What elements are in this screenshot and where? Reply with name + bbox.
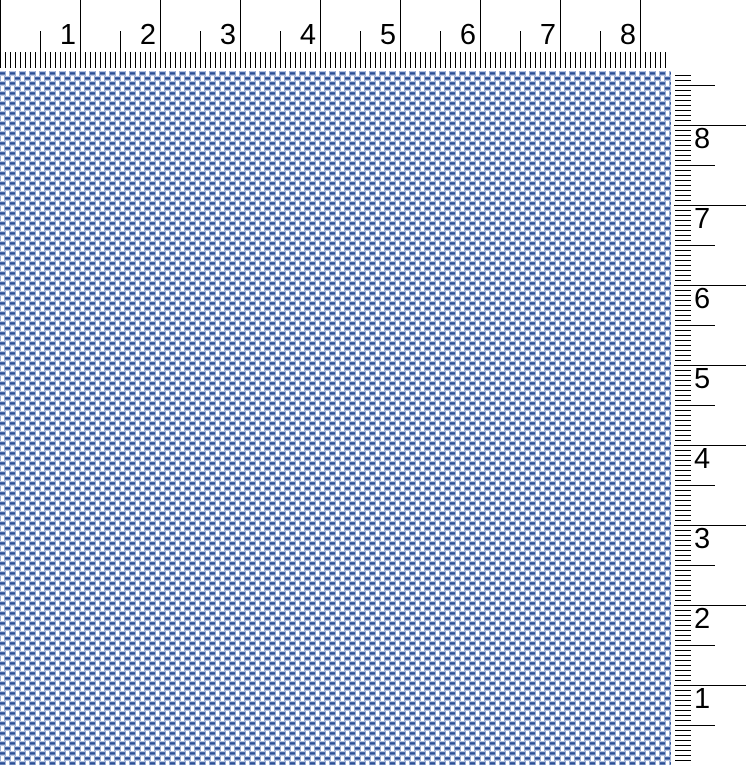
- half-inch-tick: [675, 645, 715, 646]
- minor-tick: [675, 355, 691, 356]
- minor-tick: [675, 320, 691, 321]
- minor-tick: [545, 52, 546, 68]
- minor-tick: [370, 52, 371, 68]
- ruler-label: 3: [196, 21, 236, 50]
- minor-tick: [675, 555, 691, 556]
- half-inch-tick: [675, 405, 715, 406]
- minor-tick: [675, 190, 691, 191]
- minor-tick: [395, 52, 396, 68]
- minor-tick: [675, 680, 691, 681]
- minor-tick: [650, 52, 651, 68]
- minor-tick: [25, 52, 26, 68]
- ruler-label: 4: [276, 21, 316, 50]
- minor-tick: [675, 675, 691, 676]
- half-inch-tick: [675, 85, 715, 86]
- minor-tick: [675, 625, 691, 626]
- minor-tick: [665, 52, 666, 68]
- minor-tick: [675, 310, 691, 311]
- minor-tick: [525, 52, 526, 68]
- minor-tick: [675, 560, 691, 561]
- ruler-label: 6: [436, 21, 476, 50]
- minor-tick: [675, 740, 691, 741]
- minor-tick: [675, 395, 691, 396]
- minor-tick: [385, 52, 386, 68]
- inch-tick: [640, 0, 641, 68]
- minor-tick: [675, 715, 691, 716]
- minor-tick: [675, 110, 691, 111]
- vertical-ruler: 87654321: [674, 70, 746, 765]
- minor-tick: [140, 52, 141, 68]
- minor-tick: [555, 52, 556, 68]
- minor-tick: [235, 52, 236, 68]
- inch-tick: [0, 0, 1, 68]
- minor-tick: [415, 52, 416, 68]
- minor-tick: [675, 575, 691, 576]
- minor-tick: [675, 430, 691, 431]
- minor-tick: [675, 440, 691, 441]
- minor-tick: [130, 52, 131, 68]
- minor-tick: [305, 52, 306, 68]
- fabric-drawdown-canvas[interactable]: [0, 71, 671, 765]
- minor-tick: [675, 385, 691, 386]
- minor-tick: [610, 52, 611, 68]
- minor-tick: [675, 155, 691, 156]
- minor-tick: [455, 52, 456, 68]
- minor-tick: [675, 90, 691, 91]
- minor-tick: [250, 52, 251, 68]
- minor-tick: [490, 52, 491, 68]
- minor-tick: [675, 470, 691, 471]
- minor-tick: [195, 52, 196, 68]
- minor-tick: [675, 535, 691, 536]
- minor-tick: [675, 295, 691, 296]
- minor-tick: [675, 520, 691, 521]
- minor-tick: [70, 52, 71, 68]
- minor-tick: [445, 52, 446, 68]
- minor-tick: [675, 595, 691, 596]
- minor-tick: [50, 52, 51, 68]
- ruler-label: 3: [694, 525, 710, 554]
- minor-tick: [675, 460, 691, 461]
- inch-tick: [160, 0, 161, 68]
- ruler-label: 8: [694, 125, 710, 154]
- minor-tick: [255, 52, 256, 68]
- minor-tick: [210, 52, 211, 68]
- minor-tick: [135, 52, 136, 68]
- minor-tick: [100, 52, 101, 68]
- minor-tick: [15, 52, 16, 68]
- fabric-preview-window: 12345678 87654321: [0, 0, 746, 765]
- minor-tick: [275, 52, 276, 68]
- minor-tick: [110, 52, 111, 68]
- minor-tick: [675, 100, 691, 101]
- minor-tick: [410, 52, 411, 68]
- minor-tick: [605, 52, 606, 68]
- minor-tick: [675, 375, 691, 376]
- minor-tick: [345, 52, 346, 68]
- minor-tick: [230, 52, 231, 68]
- minor-tick: [675, 550, 691, 551]
- minor-tick: [675, 745, 691, 746]
- minor-tick: [675, 215, 691, 216]
- minor-tick: [10, 52, 11, 68]
- minor-tick: [675, 475, 691, 476]
- minor-tick: [675, 185, 691, 186]
- minor-tick: [125, 52, 126, 68]
- minor-tick: [465, 52, 466, 68]
- minor-tick: [675, 345, 691, 346]
- minor-tick: [300, 52, 301, 68]
- ruler-label: 7: [516, 21, 556, 50]
- minor-tick: [675, 290, 691, 291]
- minor-tick: [615, 52, 616, 68]
- minor-tick: [180, 52, 181, 68]
- minor-tick: [675, 640, 691, 641]
- minor-tick: [675, 270, 691, 271]
- minor-tick: [485, 52, 486, 68]
- minor-tick: [530, 52, 531, 68]
- minor-tick: [675, 540, 691, 541]
- minor-tick: [675, 700, 691, 701]
- minor-tick: [535, 52, 536, 68]
- minor-tick: [75, 52, 76, 68]
- ruler-label: 1: [36, 21, 76, 50]
- minor-tick: [675, 275, 691, 276]
- minor-tick: [675, 370, 691, 371]
- minor-tick: [675, 455, 691, 456]
- minor-tick: [675, 710, 691, 711]
- minor-tick: [675, 390, 691, 391]
- half-inch-tick: [675, 485, 715, 486]
- minor-tick: [515, 52, 516, 68]
- minor-tick: [675, 435, 691, 436]
- minor-tick: [675, 480, 691, 481]
- minor-tick: [675, 690, 691, 691]
- minor-tick: [675, 135, 691, 136]
- minor-tick: [675, 305, 691, 306]
- minor-tick: [675, 495, 691, 496]
- minor-tick: [675, 730, 691, 731]
- minor-tick: [540, 52, 541, 68]
- minor-tick: [675, 500, 691, 501]
- minor-tick: [245, 52, 246, 68]
- minor-tick: [585, 52, 586, 68]
- minor-tick: [675, 695, 691, 696]
- half-inch-tick: [675, 565, 715, 566]
- minor-tick: [675, 80, 691, 81]
- minor-tick: [570, 52, 571, 68]
- minor-tick: [675, 250, 691, 251]
- minor-tick: [625, 52, 626, 68]
- minor-tick: [315, 52, 316, 68]
- minor-tick: [675, 380, 691, 381]
- inch-tick: [560, 0, 561, 68]
- minor-tick: [550, 52, 551, 68]
- minor-tick: [675, 130, 691, 131]
- minor-tick: [145, 52, 146, 68]
- minor-tick: [675, 335, 691, 336]
- minor-tick: [675, 580, 691, 581]
- minor-tick: [175, 52, 176, 68]
- minor-tick: [675, 510, 691, 511]
- minor-tick: [430, 52, 431, 68]
- minor-tick: [65, 52, 66, 68]
- minor-tick: [675, 515, 691, 516]
- minor-tick: [675, 415, 691, 416]
- minor-tick: [425, 52, 426, 68]
- minor-tick: [470, 52, 471, 68]
- minor-tick: [675, 670, 691, 671]
- minor-tick: [290, 52, 291, 68]
- minor-tick: [420, 52, 421, 68]
- minor-tick: [450, 52, 451, 68]
- minor-tick: [55, 52, 56, 68]
- minor-tick: [675, 615, 691, 616]
- minor-tick: [390, 52, 391, 68]
- minor-tick: [675, 505, 691, 506]
- ruler-label: 1: [694, 685, 710, 714]
- minor-tick: [580, 52, 581, 68]
- minor-tick: [675, 410, 691, 411]
- fabric-weave-texture: [0, 71, 671, 765]
- minor-tick: [380, 52, 381, 68]
- minor-tick: [20, 52, 21, 68]
- minor-tick: [105, 52, 106, 68]
- minor-tick: [675, 235, 691, 236]
- minor-tick: [675, 590, 691, 591]
- minor-tick: [675, 225, 691, 226]
- minor-tick: [675, 425, 691, 426]
- minor-tick: [675, 655, 691, 656]
- minor-tick: [5, 52, 6, 68]
- minor-tick: [675, 330, 691, 331]
- minor-tick: [60, 52, 61, 68]
- minor-tick: [325, 52, 326, 68]
- minor-tick: [185, 52, 186, 68]
- minor-tick: [675, 450, 691, 451]
- minor-tick: [675, 260, 691, 261]
- minor-tick: [330, 52, 331, 68]
- minor-tick: [95, 52, 96, 68]
- minor-tick: [285, 52, 286, 68]
- ruler-label: 8: [596, 21, 636, 50]
- minor-tick: [675, 720, 691, 721]
- minor-tick: [675, 220, 691, 221]
- half-inch-tick: [675, 165, 715, 166]
- half-inch-tick: [675, 725, 715, 726]
- minor-tick: [675, 340, 691, 341]
- minor-tick: [675, 635, 691, 636]
- minor-tick: [115, 52, 116, 68]
- minor-tick: [460, 52, 461, 68]
- minor-tick: [675, 705, 691, 706]
- minor-tick: [475, 52, 476, 68]
- half-inch-tick: [675, 245, 715, 246]
- minor-tick: [675, 195, 691, 196]
- minor-tick: [675, 400, 691, 401]
- minor-tick: [505, 52, 506, 68]
- minor-tick: [675, 660, 691, 661]
- minor-tick: [675, 140, 691, 141]
- minor-tick: [675, 75, 691, 76]
- minor-tick: [675, 490, 691, 491]
- minor-tick: [675, 240, 691, 241]
- ruler-label: 7: [694, 205, 710, 234]
- minor-tick: [675, 180, 691, 181]
- minor-tick: [675, 630, 691, 631]
- minor-tick: [675, 420, 691, 421]
- ruler-label: 6: [694, 285, 710, 314]
- minor-tick: [675, 280, 691, 281]
- minor-tick: [655, 52, 656, 68]
- minor-tick: [510, 52, 511, 68]
- minor-tick: [225, 52, 226, 68]
- minor-tick: [675, 150, 691, 151]
- minor-tick: [165, 52, 166, 68]
- minor-tick: [45, 52, 46, 68]
- minor-tick: [170, 52, 171, 68]
- minor-tick: [375, 52, 376, 68]
- minor-tick: [675, 360, 691, 361]
- minor-tick: [675, 95, 691, 96]
- minor-tick: [435, 52, 436, 68]
- minor-tick: [215, 52, 216, 68]
- minor-tick: [675, 120, 691, 121]
- minor-tick: [635, 52, 636, 68]
- minor-tick: [155, 52, 156, 68]
- minor-tick: [675, 315, 691, 316]
- minor-tick: [675, 230, 691, 231]
- minor-tick: [575, 52, 576, 68]
- inch-tick: [240, 0, 241, 68]
- minor-tick: [595, 52, 596, 68]
- minor-tick: [205, 52, 206, 68]
- minor-tick: [260, 52, 261, 68]
- minor-tick: [675, 665, 691, 666]
- minor-tick: [675, 735, 691, 736]
- minor-tick: [85, 52, 86, 68]
- minor-tick: [675, 760, 691, 761]
- minor-tick: [190, 52, 191, 68]
- minor-tick: [675, 105, 691, 106]
- ruler-label: 5: [356, 21, 396, 50]
- minor-tick: [675, 650, 691, 651]
- inch-tick: [80, 0, 81, 68]
- minor-tick: [675, 200, 691, 201]
- minor-tick: [295, 52, 296, 68]
- ruler-label: 5: [694, 365, 710, 394]
- minor-tick: [365, 52, 366, 68]
- minor-tick: [495, 52, 496, 68]
- minor-tick: [675, 545, 691, 546]
- minor-tick: [675, 300, 691, 301]
- minor-tick: [675, 265, 691, 266]
- minor-tick: [675, 600, 691, 601]
- minor-tick: [310, 52, 311, 68]
- minor-tick: [35, 52, 36, 68]
- minor-tick: [675, 160, 691, 161]
- minor-tick: [335, 52, 336, 68]
- minor-tick: [590, 52, 591, 68]
- minor-tick: [405, 52, 406, 68]
- horizontal-ruler: 12345678: [0, 0, 746, 70]
- ruler-label: 2: [694, 605, 710, 634]
- half-inch-tick: [675, 325, 715, 326]
- minor-tick: [675, 175, 691, 176]
- minor-tick: [675, 750, 691, 751]
- minor-tick: [645, 52, 646, 68]
- ruler-label: 4: [694, 445, 710, 474]
- minor-tick: [675, 465, 691, 466]
- minor-tick: [565, 52, 566, 68]
- minor-tick: [270, 52, 271, 68]
- minor-tick: [675, 620, 691, 621]
- minor-tick: [265, 52, 266, 68]
- minor-tick: [675, 570, 691, 571]
- minor-tick: [630, 52, 631, 68]
- ruler-label: 2: [116, 21, 156, 50]
- minor-tick: [30, 52, 31, 68]
- minor-tick: [340, 52, 341, 68]
- minor-tick: [500, 52, 501, 68]
- minor-tick: [675, 210, 691, 211]
- inch-tick: [480, 0, 481, 68]
- minor-tick: [675, 170, 691, 171]
- inch-tick: [320, 0, 321, 68]
- minor-tick: [660, 52, 661, 68]
- minor-tick: [675, 610, 691, 611]
- minor-tick: [675, 585, 691, 586]
- minor-tick: [90, 52, 91, 68]
- minor-tick: [675, 255, 691, 256]
- inch-tick: [400, 0, 401, 68]
- minor-tick: [675, 755, 691, 756]
- minor-tick: [220, 52, 221, 68]
- minor-tick: [675, 115, 691, 116]
- minor-tick: [150, 52, 151, 68]
- minor-tick: [675, 145, 691, 146]
- minor-tick: [675, 350, 691, 351]
- minor-tick: [355, 52, 356, 68]
- minor-tick: [620, 52, 621, 68]
- minor-tick: [675, 530, 691, 531]
- minor-tick: [350, 52, 351, 68]
